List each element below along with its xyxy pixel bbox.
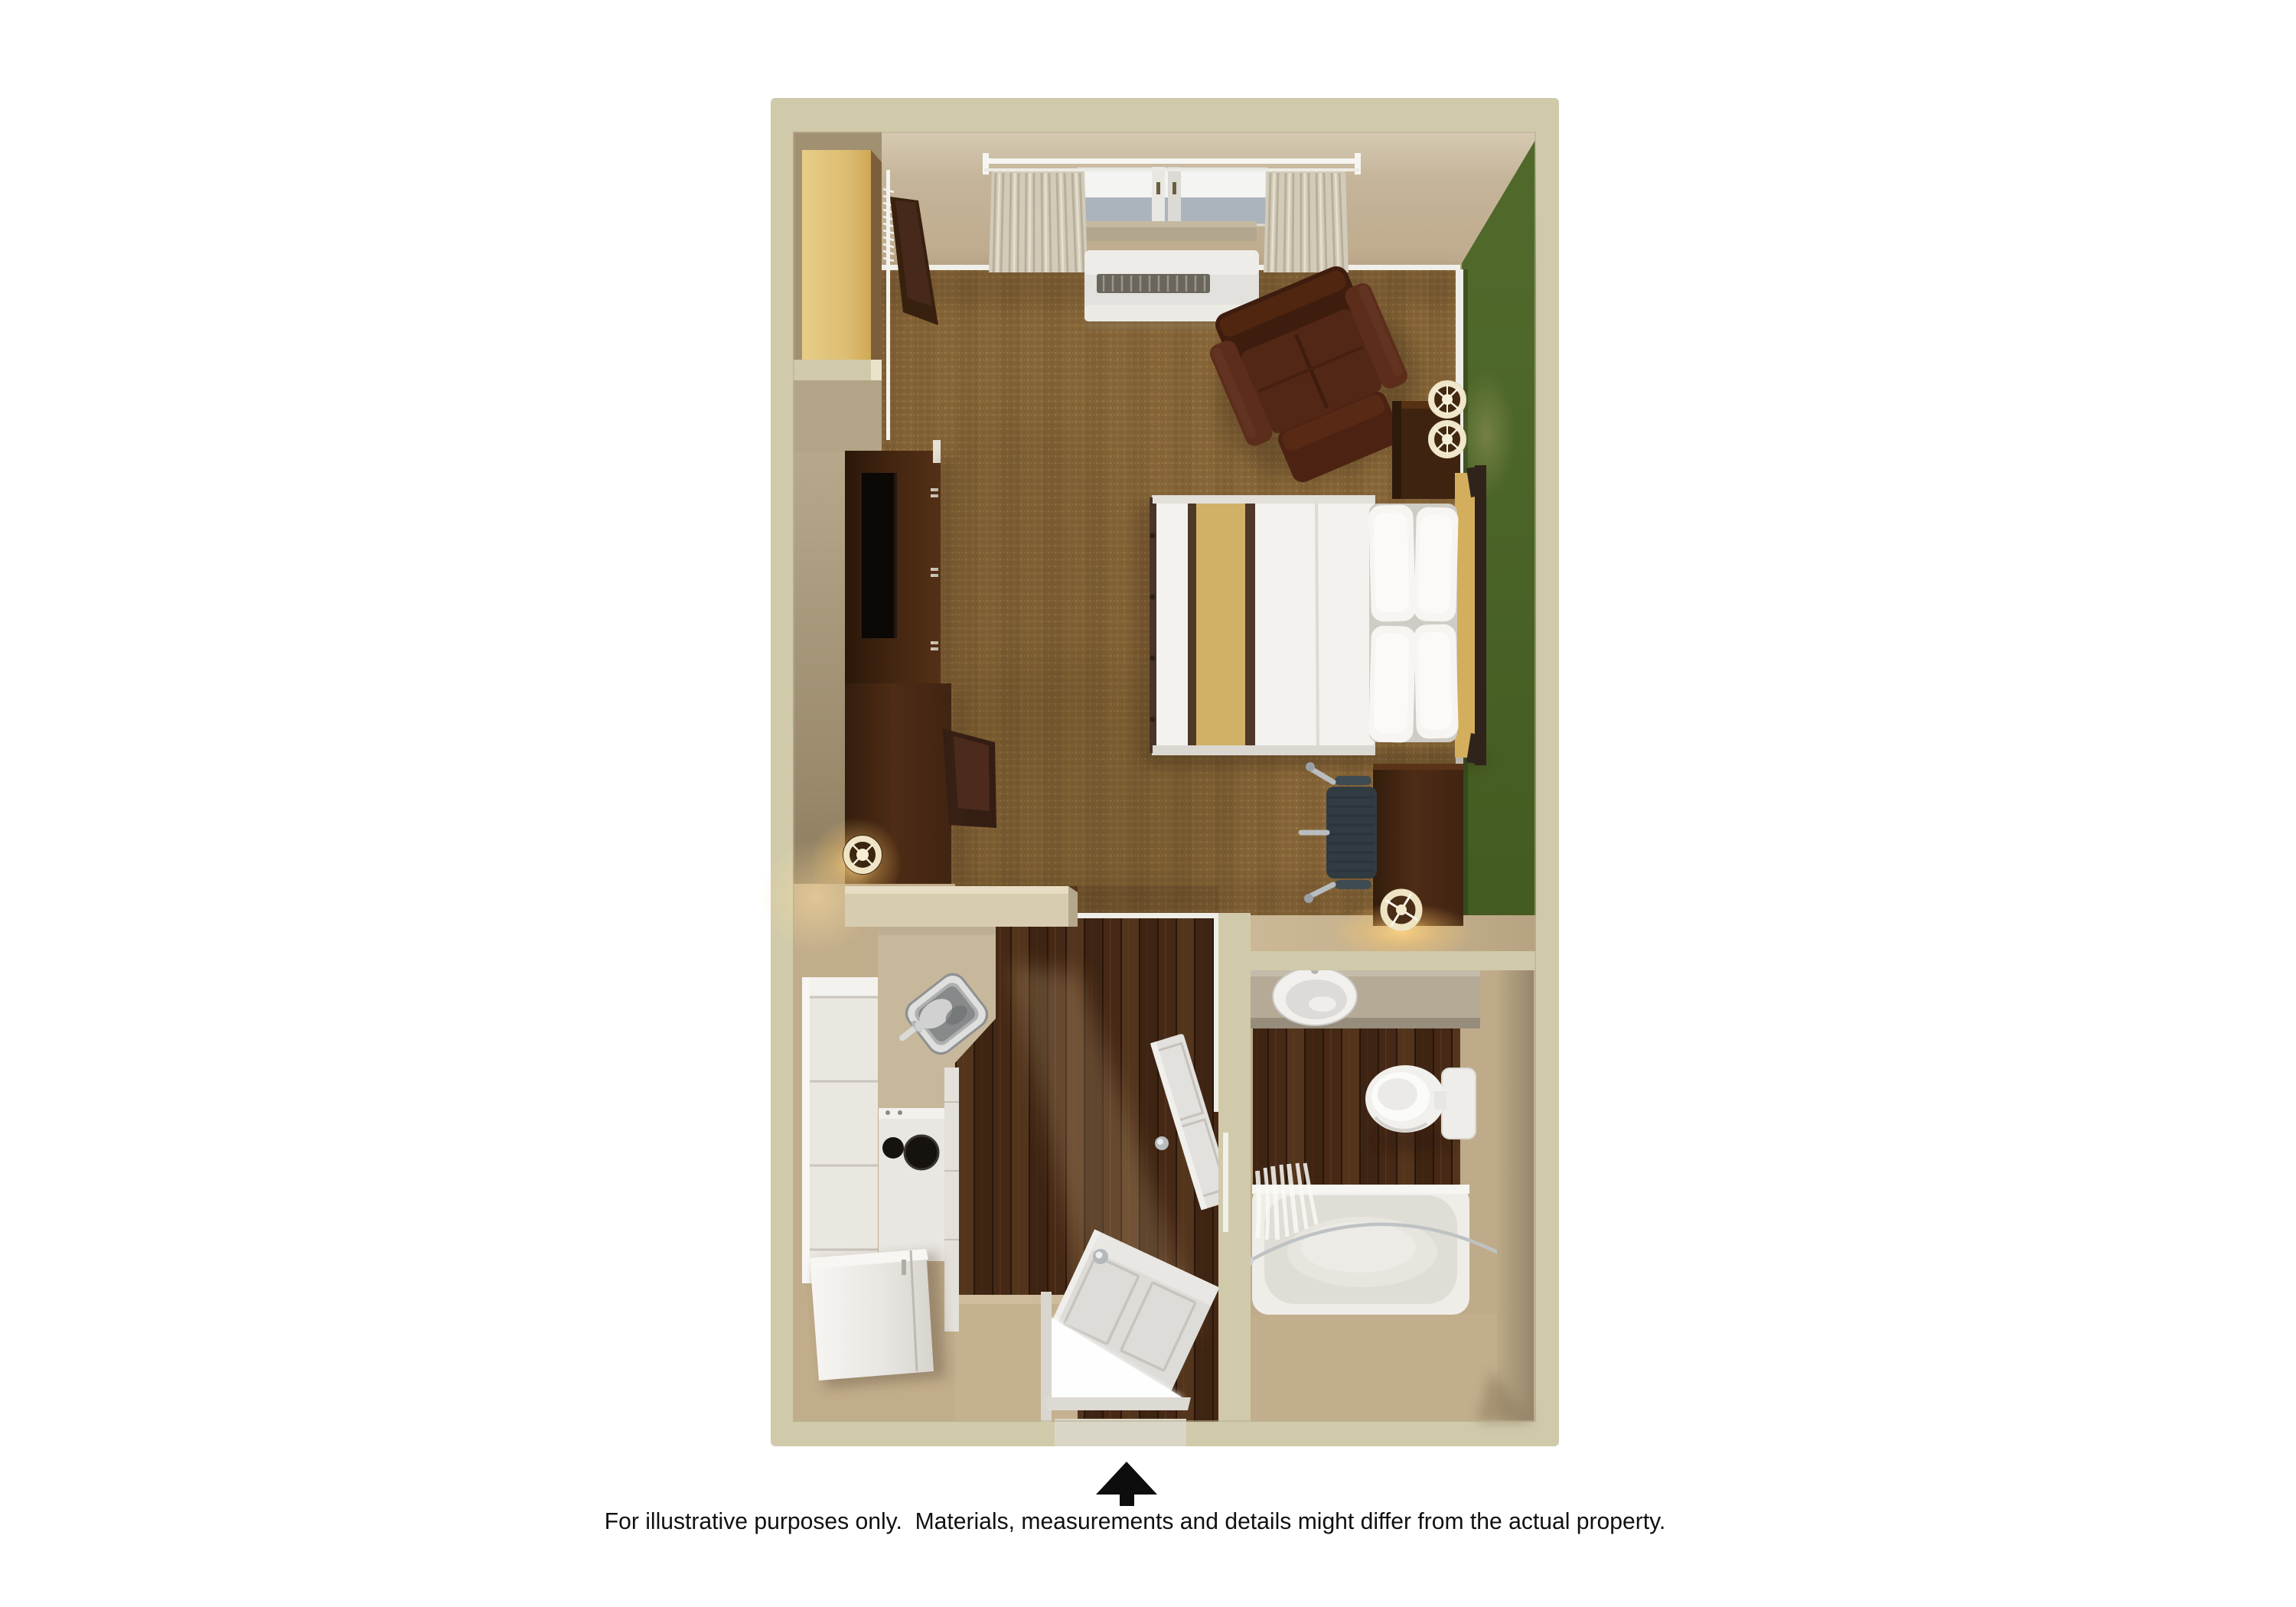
svg-text:For illustrative purposes only: For illustrative purposes only. Material…	[605, 1509, 1666, 1534]
